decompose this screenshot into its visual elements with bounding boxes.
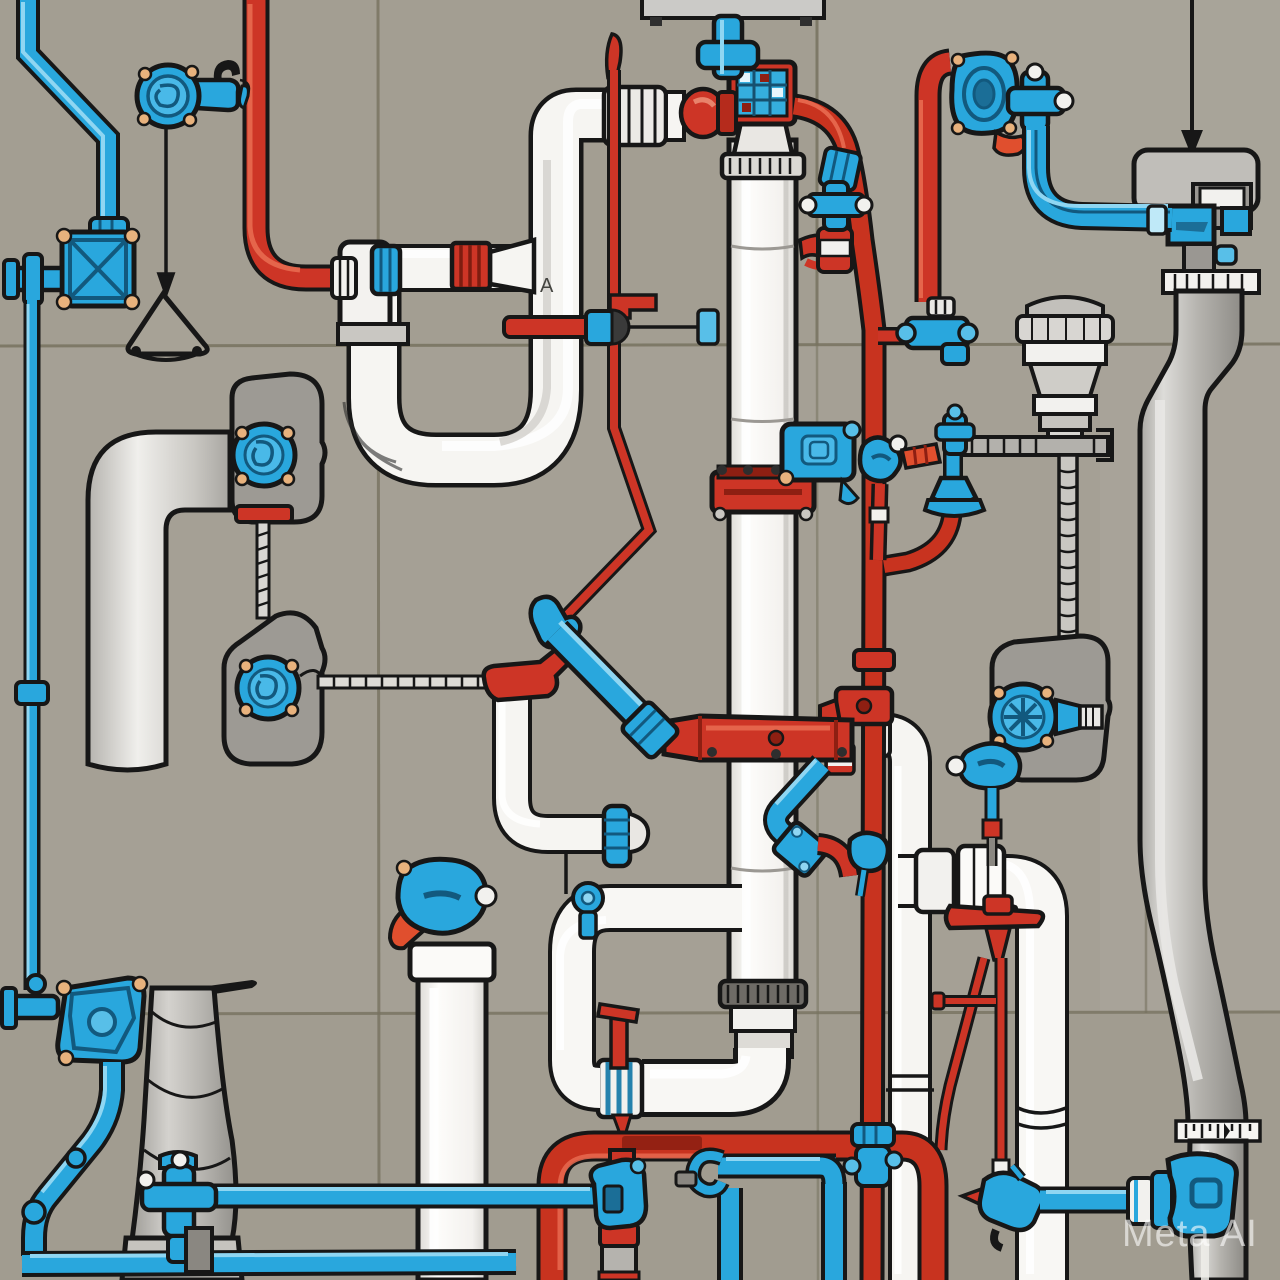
svg-text:A: A xyxy=(540,275,554,297)
svg-text:Meta AI: Meta AI xyxy=(1122,1213,1258,1255)
